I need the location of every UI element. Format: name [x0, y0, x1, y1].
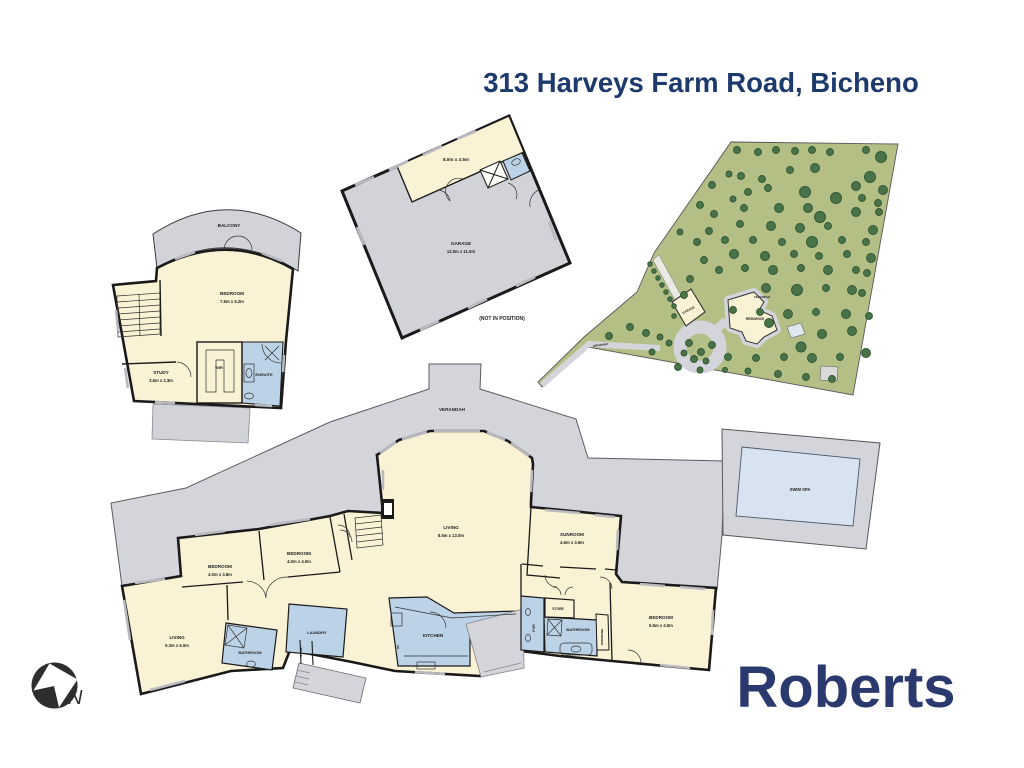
svg-text:KITCHEN: KITCHEN	[423, 633, 444, 638]
svg-text:5.3m x 6.0m: 5.3m x 6.0m	[165, 643, 189, 648]
svg-text:OV: OV	[396, 645, 400, 649]
svg-text:BALCONY: BALCONY	[218, 223, 241, 228]
svg-text:4.0m x 3.8m: 4.0m x 3.8m	[208, 572, 232, 577]
svg-text:GARAGE: GARAGE	[451, 241, 471, 246]
svg-text:7.5m x 5.2m: 7.5m x 5.2m	[220, 299, 244, 304]
svg-text:STORE: STORE	[552, 607, 564, 611]
svg-text:Roberts: Roberts	[736, 655, 955, 720]
svg-text:BEDROOM: BEDROOM	[649, 615, 673, 620]
svg-text:ENSUITE: ENSUITE	[255, 372, 273, 377]
svg-text:POR: POR	[532, 624, 536, 632]
svg-text:VERANDAH: VERANDAH	[754, 295, 770, 299]
svg-text:N: N	[68, 687, 83, 709]
svg-text:LIVING: LIVING	[169, 635, 185, 640]
svg-text:3.6m x 2.3m: 3.6m x 2.3m	[149, 378, 173, 383]
svg-text:8.0m x 3.5m: 8.0m x 3.5m	[443, 157, 469, 162]
svg-text:8.5m x 13.0m: 8.5m x 13.0m	[438, 533, 464, 538]
svg-text:4.6m x 3.6m: 4.6m x 3.6m	[560, 540, 584, 545]
svg-text:BEDROOM: BEDROOM	[287, 551, 311, 556]
svg-text:SUNROOM: SUNROOM	[560, 532, 584, 537]
svg-text:LIVING: LIVING	[443, 525, 459, 530]
svg-text:BATHROOM: BATHROOM	[566, 627, 590, 632]
svg-text:5.5m x 4.5m: 5.5m x 4.5m	[649, 623, 673, 628]
svg-text:LAUNDRY: LAUNDRY	[307, 630, 327, 635]
svg-text:(NOT IN POSITION): (NOT IN POSITION)	[479, 316, 525, 322]
svg-text:STUDY: STUDY	[153, 370, 169, 375]
svg-text:313 Harveys Farm Road, Bicheno: 313 Harveys Farm Road, Bicheno	[483, 67, 919, 98]
svg-text:WIR: WIR	[215, 365, 223, 370]
svg-text:BEDROOM: BEDROOM	[220, 291, 244, 296]
svg-text:BATHROOM: BATHROOM	[238, 650, 262, 655]
svg-text:BEDROOM: BEDROOM	[208, 564, 232, 569]
svg-text:SWIM SPA: SWIM SPA	[790, 487, 811, 492]
svg-text:4.0m x 4.0m: 4.0m x 4.0m	[287, 559, 311, 564]
svg-text:VERANDAH: VERANDAH	[439, 407, 466, 412]
svg-text:WARDROBE: WARDROBE	[600, 629, 604, 646]
svg-text:RESIDENCE: RESIDENCE	[746, 317, 765, 321]
svg-text:12.0m x 11.0m: 12.0m x 11.0m	[447, 249, 475, 254]
